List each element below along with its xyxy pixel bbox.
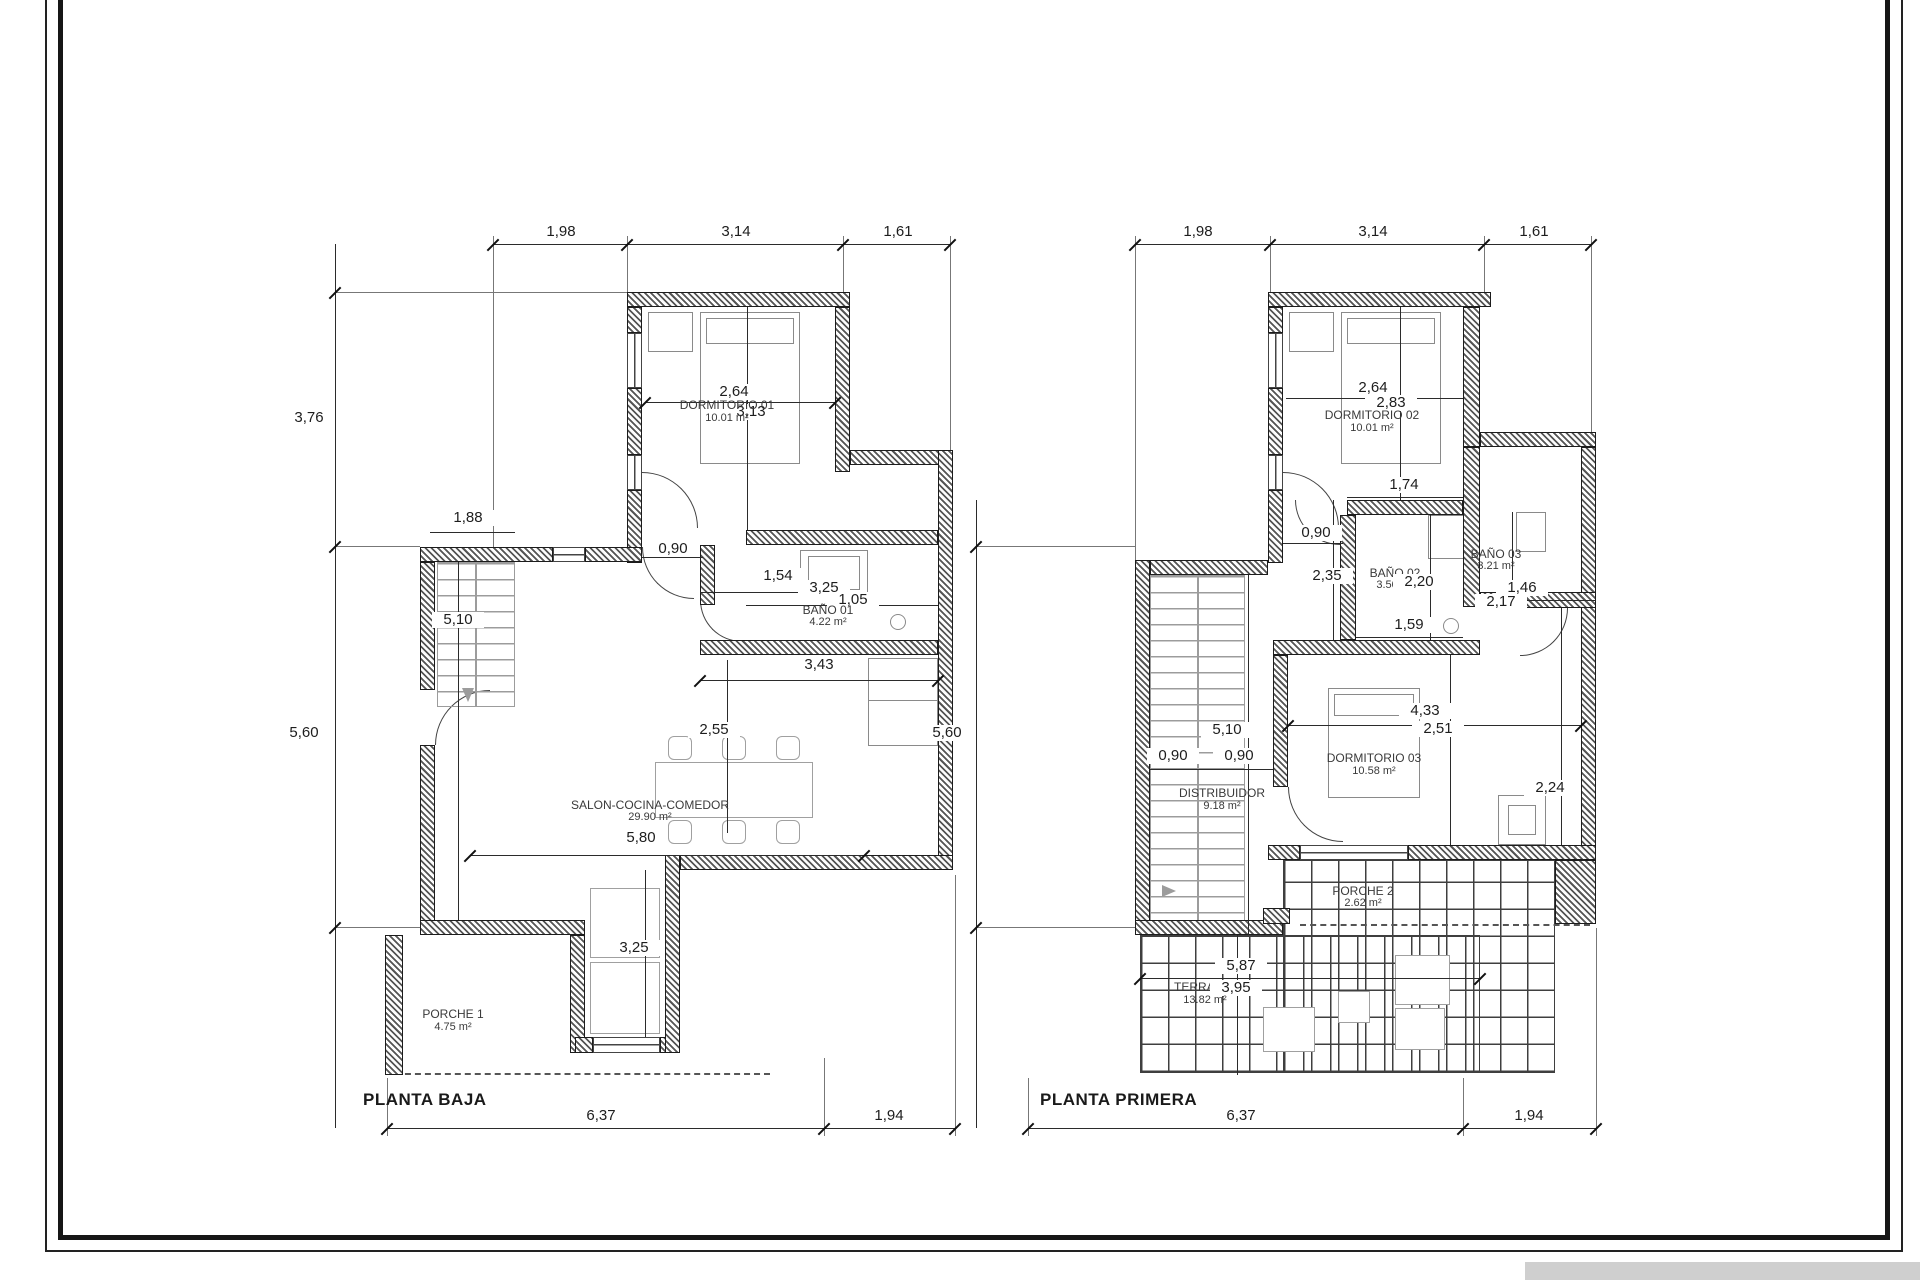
toilet [1443, 618, 1459, 634]
extension-line [335, 546, 420, 547]
dim-label: 6,37 [575, 1108, 627, 1124]
room-area: 10.58 m² [1304, 766, 1444, 777]
dim-label: 1,54 [752, 568, 804, 584]
wall [420, 745, 435, 935]
cropped-gray-artifact [1525, 1262, 1920, 1280]
terrace-furniture [1338, 991, 1370, 1023]
dim-label: 1,94 [1503, 1108, 1555, 1124]
dimension-line [1450, 655, 1451, 845]
porch-pillar [1555, 860, 1596, 924]
wall [1463, 447, 1480, 607]
wall [420, 547, 553, 562]
room-area: 3.21 m² [1451, 561, 1541, 572]
wall [1150, 560, 1268, 575]
chair [668, 736, 692, 760]
wall [700, 545, 715, 605]
sofa [590, 962, 660, 1034]
window [553, 547, 585, 562]
dim-label: 4,33 [1399, 703, 1451, 719]
dim-label: 2,55 [688, 722, 740, 738]
extension-line [824, 1058, 825, 1136]
dimension-line [493, 244, 950, 245]
wall [1480, 432, 1596, 447]
dimension-line [700, 592, 805, 593]
dimension-line [1356, 637, 1463, 638]
wall [570, 935, 585, 1053]
dim-label: 2,17 [1475, 594, 1527, 610]
extension-line [493, 236, 494, 547]
dim-label: 3,14 [1347, 224, 1399, 240]
bed-pillow [706, 318, 794, 344]
room-area: 9.18 m² [1162, 801, 1282, 812]
window [593, 1037, 660, 1053]
dimension-line [1135, 244, 1591, 245]
extension-line [335, 927, 425, 928]
dim-label: 5,80 [615, 830, 667, 846]
extension-line [955, 875, 956, 1136]
dimension-line [1283, 543, 1343, 544]
extension-line [1591, 236, 1592, 432]
chair [776, 736, 800, 760]
dim-label: 0,90 [647, 541, 699, 557]
window [1300, 845, 1408, 860]
wall [680, 855, 953, 870]
dim-label: 2,51 [1412, 721, 1464, 737]
extension-line [1596, 928, 1597, 1136]
dim-label: 0,90 [1213, 748, 1265, 764]
dim-label: 3,14 [710, 224, 762, 240]
bed-pillow [1347, 318, 1435, 344]
plan-title: PLANTA BAJA [363, 1090, 487, 1110]
stair-direction-arrow [1162, 885, 1176, 897]
dim-label: 3,25 [608, 940, 660, 956]
wall [1268, 845, 1300, 860]
dimension-line [470, 855, 864, 856]
dimension-line [1561, 608, 1562, 845]
porch-dashed-line [1300, 924, 1590, 926]
window [1268, 333, 1283, 388]
wall [746, 530, 938, 545]
room-area: 4.22 m² [778, 617, 878, 628]
planta-primera-plan: 1,98 3,14 1,61 5,60 6,37 1,94 [0, 0, 1920, 1280]
dimension-line [1140, 978, 1480, 979]
wall [1408, 845, 1596, 860]
dimension-line [642, 557, 703, 558]
bath-sink [1516, 512, 1546, 552]
dim-label: 1,94 [863, 1108, 915, 1124]
room-label: PORCHE 1 [408, 1008, 498, 1021]
nightstand [1289, 312, 1334, 352]
wall [627, 292, 850, 307]
wall [627, 388, 642, 455]
room-area: 10.01 m² [657, 413, 797, 424]
dim-label: 0,90 [1290, 525, 1342, 541]
window [627, 455, 642, 490]
dim-label: 1,61 [1508, 224, 1560, 240]
toilet [890, 614, 906, 630]
wall [627, 307, 642, 333]
wall [585, 547, 642, 562]
dimension-line [387, 1128, 955, 1129]
dim-label: 6,37 [1215, 1108, 1267, 1124]
wall [835, 307, 850, 472]
chair [668, 820, 692, 844]
chair [722, 736, 746, 760]
wall [1268, 307, 1283, 333]
dim-label: 0,90 [1147, 748, 1199, 764]
dimension-line [1150, 769, 1273, 770]
wall [420, 920, 585, 935]
dim-label: 3,43 [793, 657, 845, 673]
chair [722, 820, 746, 844]
dim-label: 2,24 [1524, 780, 1576, 796]
dim-label: 5,87 [1215, 958, 1267, 974]
porch-pillar [385, 935, 403, 1075]
wall [938, 450, 953, 870]
dim-label: 5,60 [278, 725, 330, 741]
room-label: DORMITORIO 01 [657, 399, 797, 412]
room-area: 10.01 m² [1302, 423, 1442, 434]
stair-rail [475, 562, 477, 707]
room-label: DORMITORIO 02 [1302, 409, 1442, 422]
room-area: 29.90 m² [560, 812, 740, 823]
wall [1273, 655, 1288, 787]
extension-line [976, 927, 1135, 928]
wall [700, 640, 938, 655]
terrace-furniture [1395, 1008, 1445, 1050]
dim-label: 1,61 [872, 224, 924, 240]
window [627, 333, 642, 388]
dim-label: 1,98 [1172, 224, 1224, 240]
room-label: BAÑO 01 [778, 604, 878, 617]
dimension-line [1028, 1128, 1596, 1129]
plan-title: PLANTA PRIMERA [1040, 1090, 1197, 1110]
extension-line [335, 292, 627, 293]
room-label: SALON-COCINA-COMEDOR [560, 799, 740, 812]
wall [1263, 908, 1290, 924]
extension-line [1135, 236, 1136, 560]
wall [1347, 500, 1463, 515]
room-label: DISTRIBUIDOR [1162, 787, 1282, 800]
floor-plan-sheet: 1,98 3,14 1,61 3,76 5,60 6,37 1,94 [0, 0, 1920, 1280]
dim-label: 5,60 [921, 725, 973, 741]
porch-dashed-line [385, 1073, 770, 1075]
dim-label: 5,10 [432, 612, 484, 628]
room-area: 4.75 m² [408, 1022, 498, 1033]
wall [1268, 490, 1283, 563]
dim-label: 2,35 [1301, 568, 1353, 584]
dimension-line [1347, 497, 1463, 498]
room-label: BAÑO 03 [1451, 548, 1541, 561]
extension-line [976, 546, 1135, 547]
wall [1268, 388, 1283, 455]
extension-line [950, 236, 951, 450]
stair-direction-arrow [462, 688, 474, 702]
dimension-line [700, 680, 938, 681]
nightstand [648, 312, 693, 352]
kitchen-counter-line [868, 700, 938, 701]
dim-label: 2,20 [1393, 574, 1445, 590]
room-label: PORCHE 2 [1323, 885, 1403, 898]
dim-label: 1,74 [1378, 477, 1430, 493]
wall [1273, 640, 1480, 655]
wall [1135, 920, 1283, 935]
dim-label: 3,76 [283, 410, 335, 426]
dimension-line [335, 244, 336, 1128]
desk-chair [1508, 805, 1536, 835]
dimension-line [976, 500, 977, 1128]
room-label: DORMITORIO 03 [1304, 752, 1444, 765]
terrace-furniture [1263, 1007, 1315, 1052]
room-area: 13.82 m² [1168, 995, 1242, 1006]
terrace-furniture [1395, 955, 1450, 1005]
wall [665, 855, 680, 1053]
room-area: 2.62 m² [1323, 898, 1403, 909]
dim-label: 1,88 [442, 510, 494, 526]
window [1268, 455, 1283, 490]
chair [776, 820, 800, 844]
wall [1268, 292, 1491, 307]
dim-label: 1,59 [1383, 617, 1435, 633]
dimension-line [430, 532, 515, 533]
dim-label: 5,10 [1201, 722, 1253, 738]
dim-label: 1,98 [535, 224, 587, 240]
wall [575, 1037, 593, 1053]
wall [1463, 307, 1480, 447]
wall [1581, 447, 1596, 860]
